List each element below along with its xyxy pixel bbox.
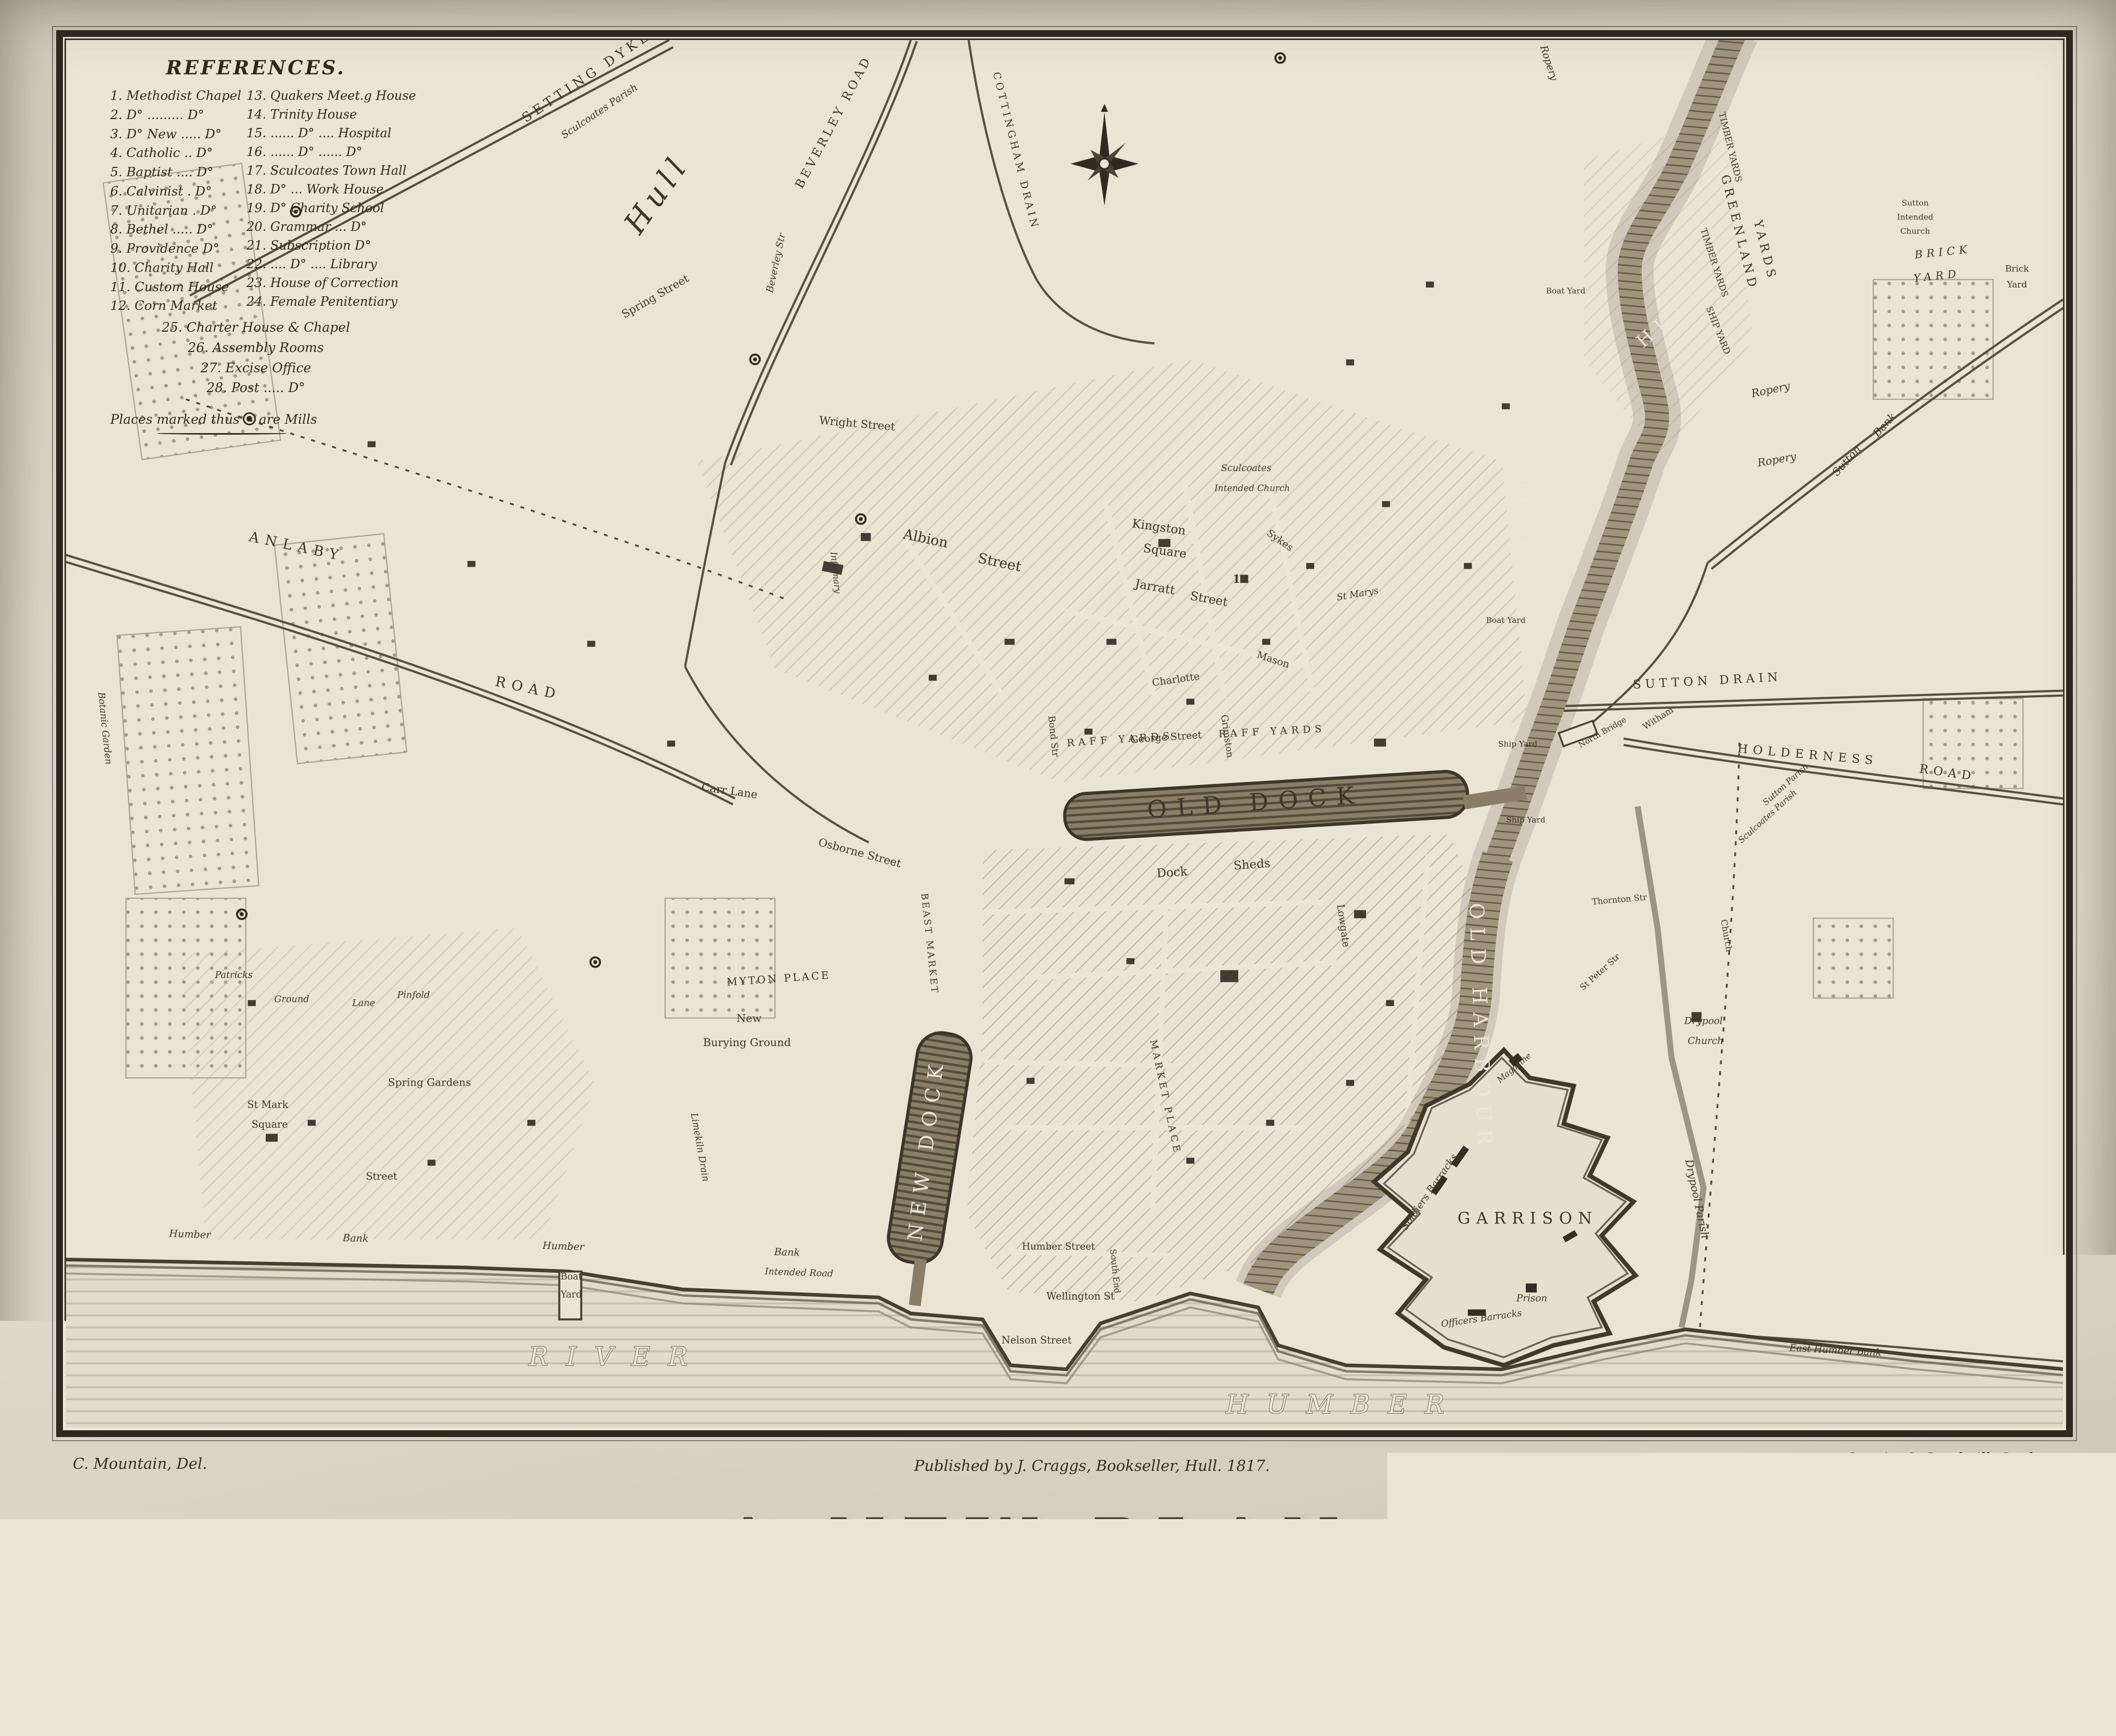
legend-entry: 13. Quakers Meet.g House	[246, 86, 416, 105]
engraver-credit: Consitt & Goodwill, Sculpt.	[1845, 1450, 2054, 1467]
legend-entry: 18. D° ... Work House	[246, 180, 416, 199]
map-label: 17	[1232, 572, 1248, 585]
map-label: Ground	[274, 994, 309, 1004]
legend-entry: 9. Providence D°	[110, 239, 241, 258]
map-title-line2: of the Town of (Kingston) upon Hull and …	[0, 1591, 2116, 1666]
map-label: Humber Street	[1022, 1241, 1095, 1252]
legend-column-2: 13. Quakers Meet.g House14. Trinity Hous…	[246, 86, 416, 316]
title-script-pre: of the Town of	[424, 1596, 822, 1657]
title-script-post: upon Hull and its	[1210, 1596, 1692, 1657]
map-label: Yard	[2006, 279, 2027, 290]
map-label: Dock	[1156, 865, 1188, 880]
mill-symbol-icon	[243, 412, 256, 425]
map-label: Church	[1900, 226, 1930, 236]
map-label: RIVER	[528, 1341, 706, 1372]
map-label: Ship Yard	[1506, 815, 1545, 825]
legend-entry: 8. Bethel ..... D°	[110, 220, 241, 239]
legend-entry: 24. Female Penitentiary	[246, 292, 416, 311]
scale-tick-left: 20 40	[109, 1380, 140, 1392]
map-label: Bank	[773, 1246, 800, 1259]
legend-entry: 16. ...... D° ...... D°	[246, 142, 416, 161]
scale-title: A Scale of Yards	[181, 1361, 338, 1379]
map-label: Sutton	[1902, 199, 1929, 208]
page-background: { "palette":{"paper":"#d8d1c3","map_pape…	[0, 0, 2116, 1736]
legend-entry: 12. Corn Market	[110, 296, 241, 316]
title-kingston: Kingston	[866, 1593, 1166, 1658]
legend-entry: 17. Sculcoates Town Hall	[246, 161, 416, 180]
map-label: Burying Ground	[703, 1036, 791, 1049]
legend-entry: 28. Post ..... D°	[110, 378, 401, 398]
legend-entry: 3. D° New ..... D°	[110, 125, 241, 144]
mills-note: Places marked thusare Mills	[110, 412, 401, 427]
map-label: Humber	[168, 1228, 212, 1241]
map-label: Drypool	[1684, 1016, 1723, 1027]
legend-entry: 2. D° ......... D°	[110, 106, 241, 125]
title-flourish-close: )	[1166, 1591, 1192, 1666]
map-label: Church	[1687, 1036, 1723, 1047]
map-label: Yard	[560, 1289, 582, 1300]
map-label: Bank	[342, 1232, 369, 1245]
map-label: Boat Yard	[1486, 616, 1526, 625]
legend-entry: 1. Methodist Chapel	[110, 86, 241, 106]
map-label: Patricks	[214, 970, 252, 981]
legend-entry: 5. Baptist .... D°	[110, 163, 241, 182]
legend-entry: 10. Charity Hall	[110, 258, 241, 278]
map-label: Pinfold	[397, 990, 430, 1001]
map-label: HUMBER	[1225, 1389, 1462, 1419]
legend-entry: 15. ...... D° .... Hospital	[246, 124, 416, 142]
map-label: Square	[252, 1118, 288, 1130]
legend-entry: 6. Calvinist . D°	[110, 182, 241, 201]
scale-bar-rule	[93, 1393, 399, 1404]
legend-column-1: 1. Methodist Chapel2. D° ......... D°3. …	[110, 86, 241, 316]
legend-entry: 26. Assembly Rooms	[110, 338, 401, 358]
legend-entry: 22. .... D° .... Library	[246, 255, 416, 273]
legend-extras: 25. Charter House & Chapel26. Assembly R…	[110, 318, 401, 398]
map-title-line3: ENVIRONS.	[0, 1689, 2116, 1727]
map-label: Boat Yard	[1546, 286, 1586, 296]
legend-entry: 20. Grammar ... D°	[246, 217, 416, 236]
map-label: Prison	[1516, 1293, 1547, 1304]
scale-tick-right: 440	[379, 1380, 399, 1392]
map-label: Nelson Street	[1002, 1334, 1072, 1346]
map-label: Ship Yard	[1498, 739, 1537, 749]
map-label: St Mark	[247, 1099, 288, 1111]
map-label: Street	[366, 1170, 397, 1182]
legend-entry: 14. Trinity House	[246, 105, 416, 124]
map-label: GARRISON	[1458, 1209, 1598, 1228]
legend-title: REFERENCES.	[110, 56, 401, 79]
map-label: New	[736, 1012, 761, 1025]
mills-note-pre: Places marked thus	[110, 412, 240, 427]
map-label: Intended	[1897, 212, 1933, 221]
map-label: Brick	[2005, 263, 2029, 273]
map-label: Humber	[542, 1239, 586, 1253]
legend-entry: 11. Custom House	[110, 278, 241, 297]
legend-rule	[157, 432, 287, 435]
map-label: Intended Church	[1214, 483, 1290, 493]
legend-entry: 27. Excise Office	[110, 358, 401, 378]
title-flourish-open: (	[840, 1591, 866, 1666]
references-legend: REFERENCES. 1. Methodist Chapel2. D° ...…	[110, 56, 401, 435]
map-label: Boat	[561, 1272, 582, 1282]
mills-note-post: are Mills	[259, 412, 317, 427]
delineator-credit: C. Mountain, Del.	[73, 1455, 207, 1472]
map-label: Wellington St	[1046, 1290, 1114, 1302]
map-label: Sheds	[1233, 857, 1270, 873]
map-label: Lane	[352, 998, 375, 1009]
legend-entry: 25. Charter House & Chapel	[110, 318, 401, 338]
scale-bar: A Scale of Yards ¼ Mile 20 40 440	[93, 1361, 399, 1404]
map-label: Spring Gardens	[388, 1076, 471, 1089]
legend-entry: 7. Unitarian . D°	[110, 201, 241, 220]
map-title-line1: A NEW PLAN,	[0, 1505, 2116, 1577]
legend-entry: 23. House of Correction	[246, 273, 416, 292]
legend-entry: 21. Subscription D°	[246, 236, 416, 255]
map-label: Sculcoates	[1221, 463, 1271, 474]
scale-quarter-mile: ¼ Mile	[357, 1364, 399, 1378]
legend-entry: 4. Catholic .. D°	[110, 143, 241, 163]
publisher-credit: Published by J. Craggs, Bookseller, Hull…	[914, 1457, 1270, 1474]
legend-entry: 19. D° Charity School	[246, 199, 416, 217]
